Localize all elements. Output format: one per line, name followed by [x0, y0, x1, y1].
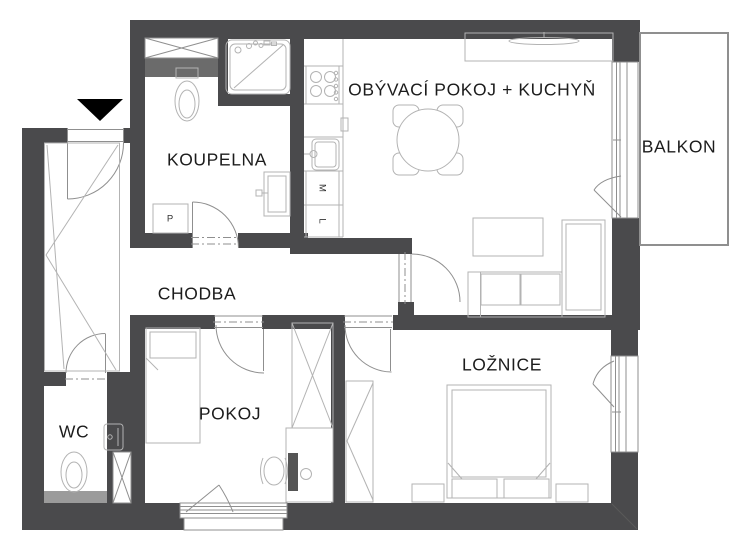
wall — [130, 315, 145, 530]
wall — [22, 503, 638, 530]
room-label-pokoj: POKOJ — [199, 404, 261, 425]
wc-threshold — [44, 491, 107, 503]
shower — [226, 40, 290, 94]
wc-toilet — [61, 452, 87, 492]
desk-chair — [261, 457, 288, 485]
installation-shaft — [145, 38, 218, 58]
cooktop — [306, 66, 339, 104]
bedroom-window — [593, 356, 638, 452]
appliance-label-fridge: L — [317, 218, 328, 223]
loznice-door — [343, 316, 393, 372]
room-label-koupelna: KOUPELNA — [167, 150, 267, 171]
loznice-bed — [447, 385, 551, 498]
coffee-table — [473, 218, 543, 256]
dining-table-set — [393, 105, 463, 175]
pokoj-wardrobe — [292, 323, 333, 428]
wall — [218, 94, 290, 106]
nightstand-right — [556, 484, 588, 502]
room-label-chodba: CHODBA — [158, 284, 236, 305]
sofa — [468, 220, 605, 317]
wall — [611, 452, 638, 505]
bathroom-door — [191, 202, 239, 248]
balcony-door-window — [594, 62, 638, 218]
wall — [611, 330, 638, 356]
wc-door — [65, 334, 108, 380]
wall — [107, 452, 113, 503]
living-room-door — [399, 252, 460, 304]
appliance-label-dishwasher: M — [317, 184, 328, 192]
room-label-wc: WC — [59, 422, 89, 443]
wall — [612, 218, 640, 330]
wall — [130, 20, 145, 248]
wall — [130, 233, 192, 248]
kitchen-sink — [304, 139, 339, 170]
pokoj-window — [180, 485, 287, 530]
wall — [290, 238, 412, 254]
pokoj-bed — [146, 328, 200, 443]
nightstand-left — [412, 484, 444, 502]
room-label-balkon: BALKON — [642, 137, 717, 158]
wall — [130, 20, 640, 39]
wall — [44, 372, 66, 386]
appliance-label-washer: P — [167, 214, 173, 225]
hall-closet — [45, 143, 120, 371]
entrance-door — [68, 128, 124, 199]
entrance-arrow-icon — [77, 99, 123, 121]
pokoj-door — [213, 316, 264, 373]
room-label-loznice: LOŽNICE — [462, 355, 542, 376]
wall — [290, 39, 304, 244]
wall — [22, 128, 44, 530]
floorplan-canvas: KOUPELNA OBÝVACÍ POKOJ + KUCHYŇ BALKON C… — [0, 0, 750, 556]
installation-shaft-2 — [113, 452, 131, 503]
wall — [612, 39, 640, 62]
kitchen-counter — [304, 39, 348, 237]
bathroom-vanity — [256, 172, 290, 216]
room-label-obyvaci-kuchyn: OBÝVACÍ POKOJ + KUCHYŇ — [348, 80, 596, 101]
loznice-wardrobe — [346, 381, 373, 502]
wall — [44, 128, 67, 143]
